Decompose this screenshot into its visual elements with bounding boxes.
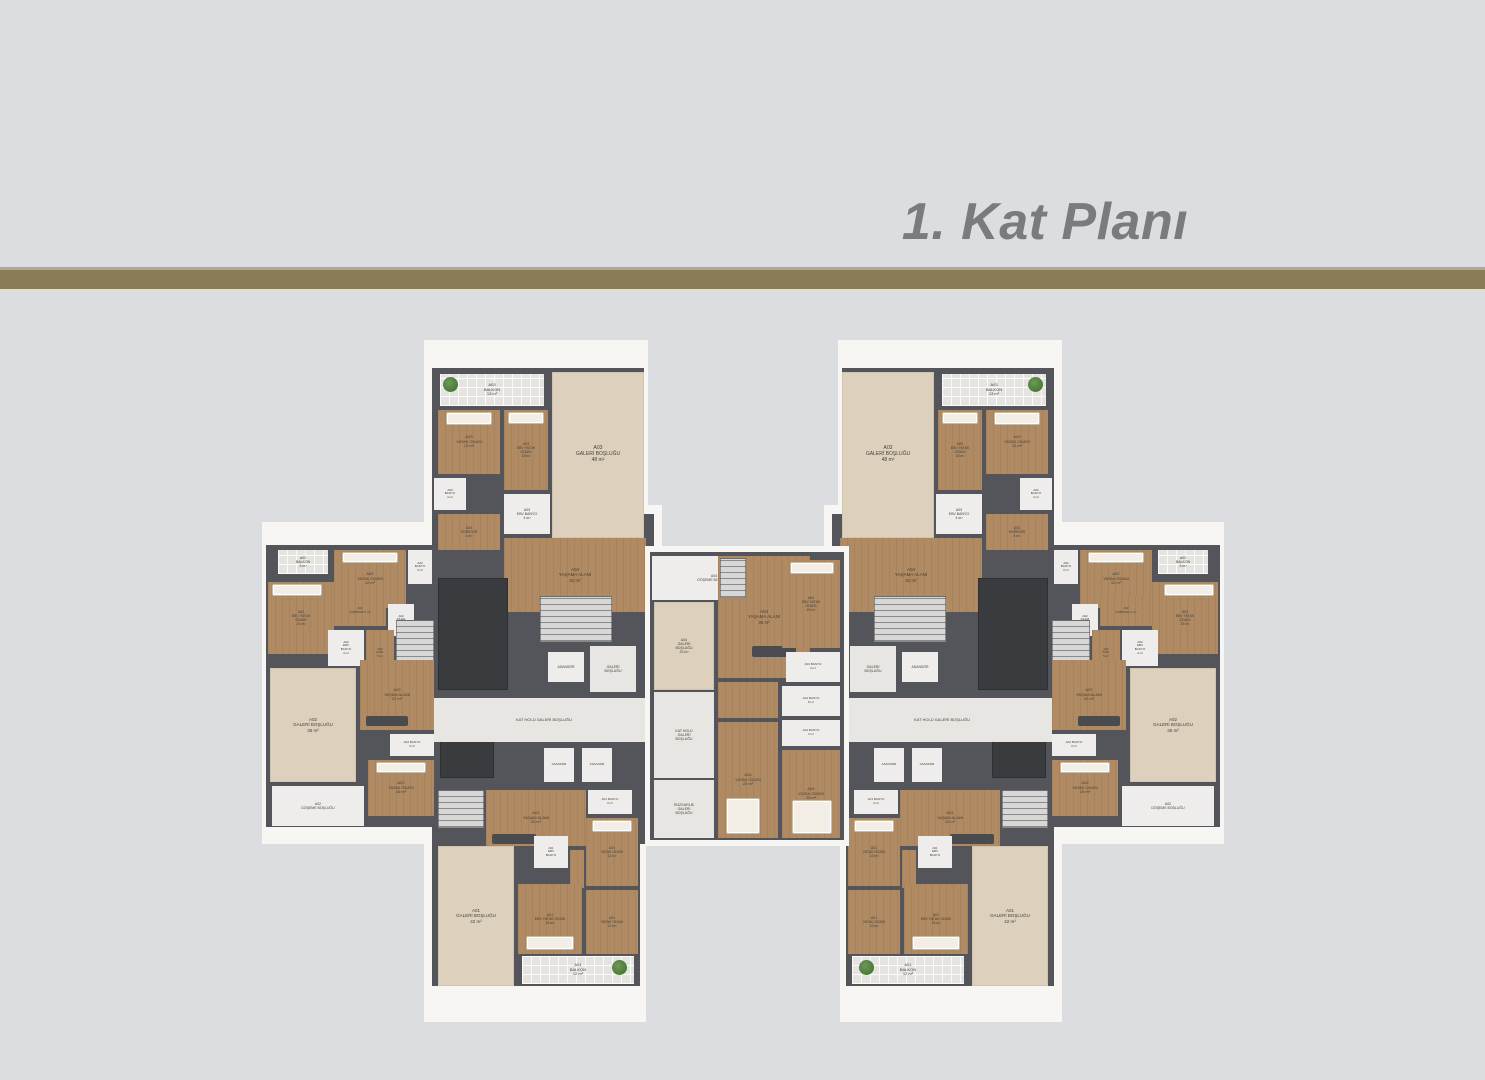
plant-icon [443, 377, 458, 392]
bed-icon [726, 798, 760, 834]
bed-icon [1060, 762, 1110, 773]
bed-icon [342, 552, 398, 563]
bed-icon [994, 412, 1040, 425]
room-a03-banyo: A03 BANYO 4 m² [1020, 478, 1052, 510]
room-a01-yatak-odasi-2: A01 YATAK ODASI 12 m² [848, 890, 900, 954]
room-a01-banyo: A01 BANYO 3 m² [854, 790, 898, 814]
room-a01-ebv-banyo: A01 EBV BANYO [918, 836, 952, 868]
room-a02-doseme-boslugu: A02 DÖŞEME BOŞLUĞU [272, 786, 364, 826]
floor-plan: A03 BALKON 13 m²A03 GALERİ BOŞLUĞU 48 m²… [0, 0, 1485, 1080]
plant-icon [612, 960, 627, 975]
bed-icon [1164, 584, 1214, 596]
room-a04-galeri-boslugu: A04 GALERİ BOŞLUĞU 23 m² [654, 602, 714, 690]
room-a04-banyo-8: A04 BANYO 8 m² [782, 686, 840, 716]
plant-icon [859, 960, 874, 975]
shaft [978, 578, 1048, 690]
sofa-icon [1078, 716, 1120, 726]
sofa-icon [950, 834, 994, 844]
elevator-asansor: ASANSÖR [902, 652, 938, 682]
room-ruzgarlik-galeri: RÜZGARLIK GALERİ BOŞLUĞU [654, 780, 714, 838]
room-a02-balkon: A02 BALKON 5 m² [278, 550, 328, 574]
bed-icon [912, 936, 960, 950]
bed-icon [592, 820, 632, 832]
room-a02-galeri-boslugu: A02 GALERİ BOŞLUĞU 35 m² [270, 668, 356, 782]
room-a01-koridor [570, 850, 584, 888]
stairs [1002, 790, 1048, 828]
room-a02-banyo-2: A02 BANYO 3 m² [1052, 734, 1096, 756]
room-kat-holu-galeri-center: KAT HOLÜ GALERİ BOŞLUĞU [654, 692, 714, 778]
room-a03-galeri-boslugu: A03 GALERİ BOŞLUĞU 48 m² [842, 372, 934, 538]
bed-icon [854, 820, 894, 832]
elevator-asansor: ASANSÖR [582, 748, 612, 782]
room-a03-galeri-boslugu: A03 GALERİ BOŞLUĞU 48 m² [552, 372, 644, 538]
stairs [720, 558, 746, 598]
room-a04-koridor [718, 682, 778, 718]
elevator-asansor: ASANSÖR [874, 748, 904, 782]
bed-icon [272, 584, 322, 596]
plant-icon [1028, 377, 1043, 392]
room-a03-koridor: A03 KORİDOR 4 m² [986, 514, 1048, 550]
room-a02-ebv-banyo: A02 EBV BANYO 4 m² [328, 630, 364, 666]
room-a01-ebv-banyo: A01 EBV BANYO [534, 836, 568, 868]
room-a04-banyo-3: A04 BANYO 3 m² [782, 720, 840, 746]
room-kat-holu-galeri: KAT HOLÜ GALERİ BOŞLUĞU [434, 698, 654, 742]
stairs [540, 596, 612, 642]
room-a04-banyo-4: A04 BANYO 4 m² [786, 652, 840, 682]
room-a03-banyo: A03 BANYO 4 m² [434, 478, 466, 510]
room-a02-galeri-boslugu: A02 GALERİ BOŞLUĞU 35 m² [1130, 668, 1216, 782]
bed-icon [446, 412, 492, 425]
room-kat-holu-galeri: KAT HOLÜ GALERİ BOŞLUĞU [832, 698, 1052, 742]
bed-icon [376, 762, 426, 773]
room-a01-koridor [902, 850, 916, 888]
stairs [874, 596, 946, 642]
room-a02-koridor: A02 KORİDOR 4 m² [1100, 596, 1152, 626]
room-a03-koridor: A03 KORİDOR 4 m² [438, 514, 500, 550]
room-a02-banyo: A02 BANYO 3 m² [408, 550, 432, 584]
room-a03-ebv-banyo: A03 EBV BANYO 4 m² [936, 494, 982, 534]
room-a02-koridor: A02 KORİDOR 4 m² [334, 596, 386, 626]
room-a02-balkon: A02 BALKON 5 m² [1158, 550, 1208, 574]
stairs [438, 790, 484, 828]
bed-icon [942, 412, 978, 424]
room-galeri-boslugu-core: GALERİ BOŞLUĞU [850, 646, 896, 692]
bed-icon [508, 412, 544, 424]
room-a02-ebv-banyo: A02 EBV BANYO 4 m² [1122, 630, 1158, 666]
room-a03-ebv-banyo: A03 EBV BANYO 4 m² [504, 494, 550, 534]
room-a01-yatak-odasi-2: A01 YATAK ODASI 12 m² [586, 890, 638, 954]
bed-icon [792, 800, 832, 834]
room-a02-banyo-2: A02 BANYO 3 m² [390, 734, 434, 756]
elevator-asansor: ASANSÖR [544, 748, 574, 782]
sofa-icon [366, 716, 408, 726]
room-a01-galeri-boslugu: A01 GALERİ BOŞLUĞU 42 m² [438, 846, 514, 986]
room-a02-banyo: A02 BANYO 3 m² [1054, 550, 1078, 584]
sofa-icon [492, 834, 536, 844]
bed-icon [1088, 552, 1144, 563]
slide-background: { "title": "1. Kat Planı", "colors": { "… [0, 0, 1485, 1080]
bed-icon [526, 936, 574, 950]
elevator-asansor: ASANSÖR [548, 652, 584, 682]
room-a01-galeri-boslugu: A01 GALERİ BOŞLUĞU 42 m² [972, 846, 1048, 986]
elevator-asansor: ASANSÖR [912, 748, 942, 782]
room-galeri-boslugu-core: GALERİ BOŞLUĞU [590, 646, 636, 692]
shaft [438, 578, 508, 690]
room-a02-doseme-boslugu: A02 DÖŞEME BOŞLUĞU [1122, 786, 1214, 826]
bed-icon [790, 562, 834, 574]
room-a01-banyo: A01 BANYO 3 m² [588, 790, 632, 814]
